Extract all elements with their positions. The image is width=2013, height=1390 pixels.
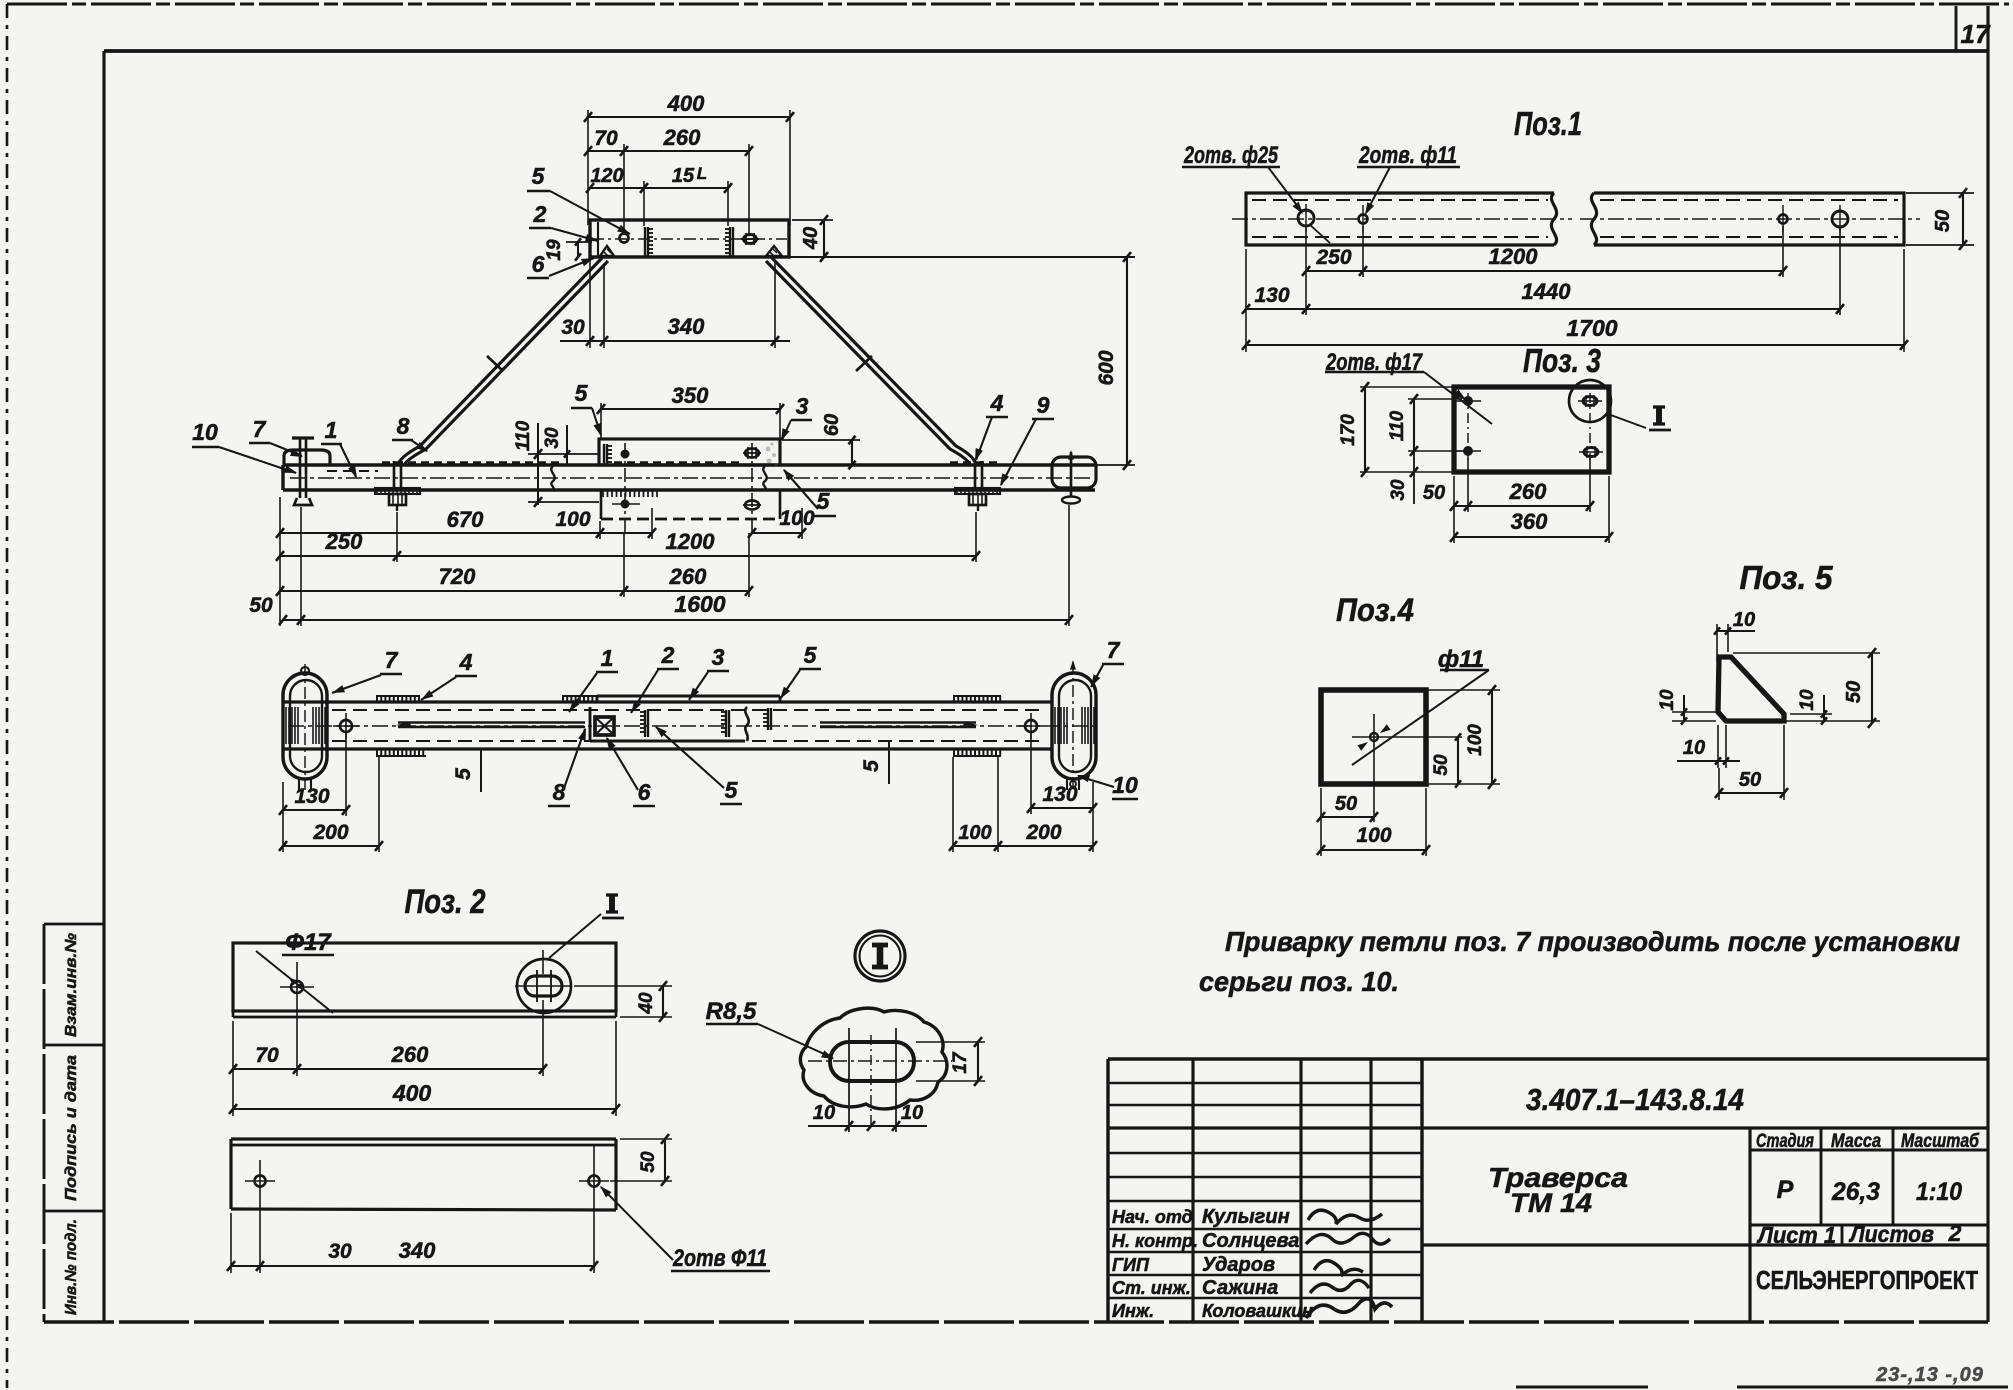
svg-text:15: 15 <box>672 165 695 187</box>
svg-text:Подпись и дата: Подпись и дата <box>63 1055 80 1201</box>
svg-text:5: 5 <box>804 642 818 668</box>
svg-text:260: 260 <box>391 1042 429 1067</box>
svg-text:50: 50 <box>1423 482 1445 504</box>
svg-text:50: 50 <box>1932 210 1954 232</box>
svg-text:Стадия: Стадия <box>1756 1131 1814 1152</box>
svg-text:1700: 1700 <box>1566 315 1617 341</box>
svg-text:Поз. 2: Поз. 2 <box>405 883 486 921</box>
svg-text:Ст. инж.: Ст. инж. <box>1112 1278 1191 1298</box>
svg-text:5: 5 <box>575 380 589 406</box>
svg-text:26,3: 26,3 <box>1831 1178 1880 1206</box>
svg-text:2отв. ф25: 2отв. ф25 <box>1183 142 1278 169</box>
svg-text:5: 5 <box>452 768 475 780</box>
svg-text:1200: 1200 <box>1489 244 1539 269</box>
svg-text:10: 10 <box>1683 737 1705 759</box>
svg-text:10: 10 <box>1657 689 1678 711</box>
svg-text:19: 19 <box>544 239 565 261</box>
svg-text:7: 7 <box>253 416 267 442</box>
svg-text:3: 3 <box>712 644 725 670</box>
svg-text:5: 5 <box>860 760 883 772</box>
svg-text:R8,5: R8,5 <box>706 998 757 1025</box>
svg-text:2: 2 <box>1948 1220 1962 1246</box>
svg-text:50: 50 <box>1431 754 1452 776</box>
svg-text:50: 50 <box>638 1151 659 1173</box>
svg-text:130: 130 <box>294 785 329 808</box>
svg-text:10: 10 <box>813 1102 835 1124</box>
svg-text:1200: 1200 <box>666 529 716 554</box>
svg-text:5: 5 <box>532 163 546 189</box>
svg-text:Поз. 3: Поз. 3 <box>1523 342 1601 379</box>
svg-text:5: 5 <box>817 488 831 514</box>
svg-text:170: 170 <box>1338 414 1359 446</box>
svg-text:60: 60 <box>821 414 843 436</box>
svg-text:Инж.: Инж. <box>1112 1301 1154 1321</box>
svg-text:Приварку петли поз. 7 произ: Приварку петли поз. 7 производить после … <box>1225 926 1960 957</box>
svg-text:Лист 1: Лист 1 <box>1756 1222 1836 1248</box>
svg-text:Листов: Листов <box>1848 1221 1934 1247</box>
svg-text:200: 200 <box>1025 821 1061 844</box>
svg-text:2: 2 <box>533 201 547 227</box>
svg-text:2отв Ф11: 2отв Ф11 <box>672 1245 767 1272</box>
svg-text:3: 3 <box>796 393 809 419</box>
svg-text:10: 10 <box>901 1102 923 1124</box>
svg-text:30: 30 <box>561 316 585 339</box>
svg-text:10: 10 <box>1112 772 1138 798</box>
svg-text:1440: 1440 <box>1522 279 1572 304</box>
svg-text:670: 670 <box>447 507 484 532</box>
svg-text:2отв. ф11: 2отв. ф11 <box>1358 142 1457 169</box>
svg-text:Взам.инв.№: Взам.инв.№ <box>63 932 80 1037</box>
svg-text:Масса: Масса <box>1831 1131 1881 1152</box>
svg-text:Кулыгин: Кулыгин <box>1202 1206 1290 1228</box>
svg-text:50: 50 <box>1843 681 1865 703</box>
svg-text:СЕЛЬЭНЕРГОПРОЕКТ: СЕЛЬЭНЕРГОПРОЕКТ <box>1756 1265 1978 1295</box>
svg-text:Поз.1: Поз.1 <box>1514 105 1582 142</box>
svg-text:340: 340 <box>668 314 705 339</box>
svg-text:40: 40 <box>800 227 822 250</box>
svg-text:250: 250 <box>325 529 363 554</box>
svg-text:Инв.№ подл.: Инв.№ подл. <box>63 1219 80 1315</box>
svg-text:1: 1 <box>601 645 614 671</box>
svg-text:100: 100 <box>555 508 590 531</box>
svg-text:100: 100 <box>1356 824 1391 847</box>
svg-text:2: 2 <box>661 642 675 668</box>
svg-text:1:10: 1:10 <box>1916 1178 1962 1206</box>
svg-text:L: L <box>697 164 707 183</box>
svg-text:Нач. отд: Нач. отд <box>1112 1207 1193 1227</box>
svg-text:10: 10 <box>192 419 218 445</box>
svg-text:1600: 1600 <box>674 591 725 617</box>
svg-text:3.407.1–143.8.14: 3.407.1–143.8.14 <box>1526 1082 1744 1117</box>
svg-text:5: 5 <box>725 777 739 803</box>
svg-text:Ф17: Ф17 <box>285 929 332 956</box>
svg-text:70: 70 <box>594 127 618 150</box>
svg-text:130: 130 <box>1254 284 1289 307</box>
svg-text:Поз. 5: Поз. 5 <box>1740 559 1834 596</box>
svg-text:6: 6 <box>638 779 651 805</box>
svg-text:Масштаб: Масштаб <box>1901 1131 1980 1152</box>
svg-text:7: 7 <box>385 647 399 673</box>
svg-text:9: 9 <box>1037 392 1050 418</box>
svg-text:50: 50 <box>249 594 273 617</box>
svg-text:30: 30 <box>542 427 563 449</box>
svg-text:ТМ 14: ТМ 14 <box>1510 1188 1592 1218</box>
svg-text:17: 17 <box>1961 19 1991 49</box>
svg-text:400: 400 <box>667 91 705 116</box>
svg-text:120: 120 <box>590 165 623 187</box>
svg-text:100: 100 <box>779 507 814 530</box>
svg-text:Коловашкин: Коловашкин <box>1202 1301 1313 1321</box>
svg-text:360: 360 <box>1511 509 1548 534</box>
svg-text:260: 260 <box>663 125 701 150</box>
svg-text:30: 30 <box>1388 479 1409 501</box>
svg-text:250: 250 <box>1315 246 1351 269</box>
svg-text:600: 600 <box>1095 350 1118 385</box>
svg-text:1: 1 <box>325 417 338 443</box>
svg-text:серьги поз. 10.: серьги поз. 10. <box>1199 966 1399 997</box>
svg-text:40: 40 <box>636 992 657 1015</box>
svg-text:340: 340 <box>399 1238 436 1263</box>
svg-text:6: 6 <box>532 251 545 277</box>
svg-text:350: 350 <box>672 383 709 408</box>
svg-text:200: 200 <box>312 821 348 844</box>
svg-text:110: 110 <box>1387 410 1408 441</box>
svg-text:30: 30 <box>328 1240 352 1263</box>
svg-text:720: 720 <box>439 564 476 589</box>
svg-text:Сажина: Сажина <box>1202 1277 1278 1299</box>
svg-text:Солнцева: Солнцева <box>1202 1230 1299 1252</box>
svg-text:100: 100 <box>958 822 991 844</box>
svg-text:50: 50 <box>1739 769 1761 791</box>
svg-text:4: 4 <box>459 649 473 675</box>
svg-text:Ударов: Ударов <box>1202 1254 1275 1276</box>
svg-text:4: 4 <box>990 390 1004 416</box>
svg-text:Н. контр.: Н. контр. <box>1112 1231 1198 1251</box>
svg-text:8: 8 <box>553 779 566 805</box>
svg-text:ГИП: ГИП <box>1112 1255 1150 1275</box>
svg-text:17: 17 <box>950 1051 971 1074</box>
svg-text:70: 70 <box>255 1044 279 1067</box>
svg-text:Поз.4: Поз.4 <box>1336 592 1414 628</box>
svg-text:260: 260 <box>1509 479 1547 504</box>
svg-text:130: 130 <box>1042 783 1077 806</box>
svg-text:100: 100 <box>1465 724 1486 756</box>
svg-text:8: 8 <box>397 413 410 439</box>
svg-text:50: 50 <box>1335 793 1357 815</box>
svg-text:7: 7 <box>1107 637 1121 663</box>
svg-text:400: 400 <box>392 1080 432 1106</box>
svg-text:10: 10 <box>1733 609 1755 631</box>
svg-text:10: 10 <box>1797 689 1818 711</box>
svg-text:23-,13 -,09: 23-,13 -,09 <box>1875 1364 1984 1386</box>
svg-text:Р: Р <box>1777 1176 1794 1204</box>
svg-text:260: 260 <box>669 564 707 589</box>
svg-text:110: 110 <box>513 420 534 451</box>
